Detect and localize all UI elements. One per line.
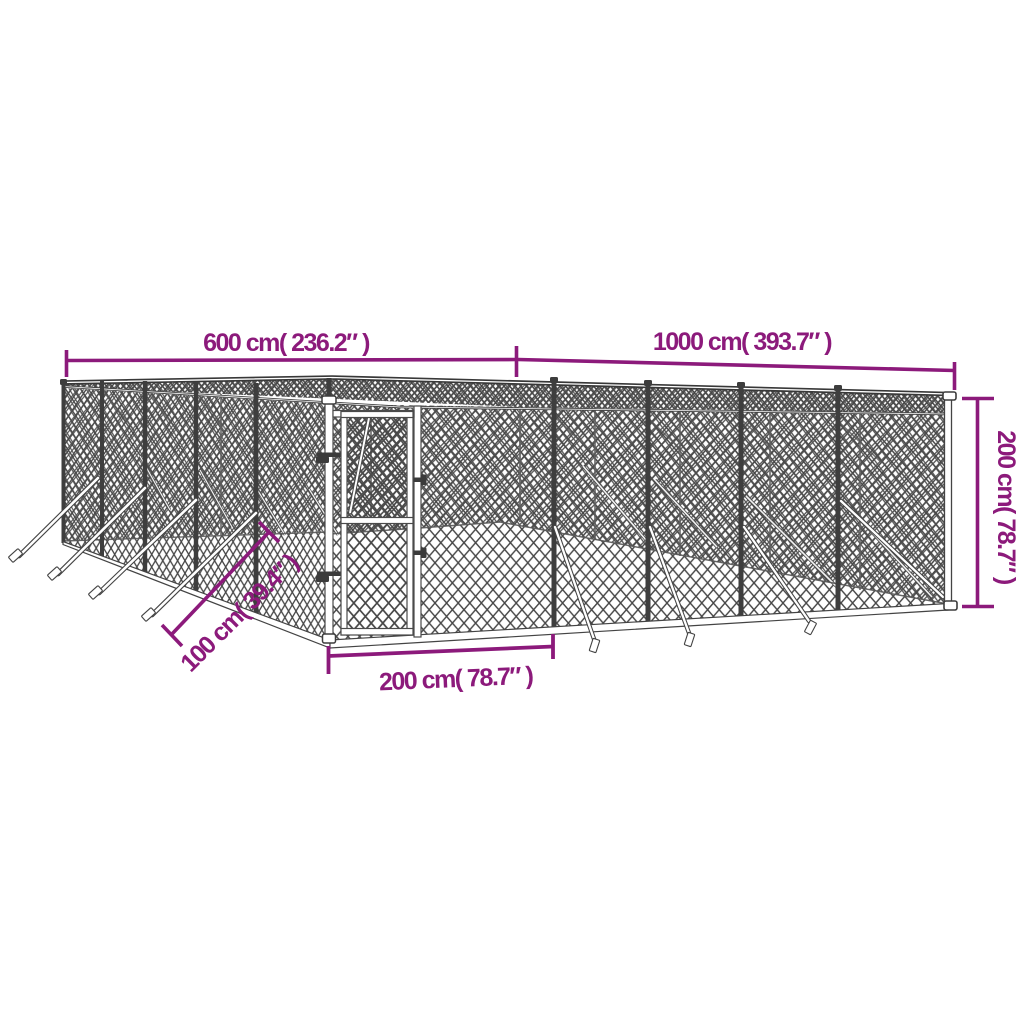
svg-text:1000 cm( 393.7″ ): 1000 cm( 393.7″ ) — [653, 328, 832, 356]
svg-text:600 cm( 236.2″ ): 600 cm( 236.2″ ) — [203, 329, 370, 357]
svg-text:200 cm( 78.7″ ): 200 cm( 78.7″ ) — [992, 430, 1020, 585]
